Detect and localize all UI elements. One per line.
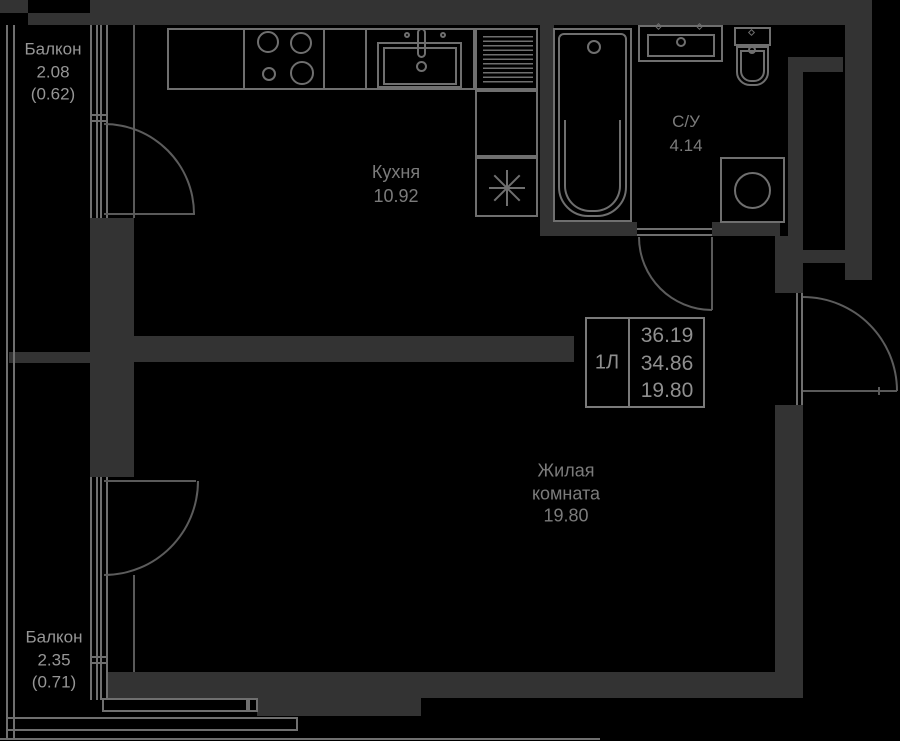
faucet-handle-icon xyxy=(440,32,446,38)
stove-burner-icon xyxy=(290,32,312,54)
stove-burner-icon xyxy=(290,61,314,85)
bathroom-label: С/У 4.14 xyxy=(669,110,702,158)
bathroom-door-frame-2 xyxy=(637,234,712,236)
bathroom-name: С/У xyxy=(669,110,702,134)
site-boundary-bottom xyxy=(0,738,600,740)
unit-areas: 36.19 34.86 19.80 xyxy=(641,322,694,405)
counter-divider-1 xyxy=(243,28,245,90)
vanity-drain-icon xyxy=(676,37,686,47)
wall-right-outer xyxy=(845,0,872,280)
balcony-bottom-label: Балкон 2.35 (0.71) xyxy=(25,626,82,694)
unit-type-label: 1Л xyxy=(595,352,619,375)
window-bottom-mullion-1 xyxy=(90,656,108,658)
counter-divider-2 xyxy=(323,28,325,90)
unit-info-box-divider xyxy=(628,317,630,408)
kitchen-area: 10.92 xyxy=(372,184,420,208)
floor-plan: 1Л 36.19 34.86 19.80 Балкон 2.08 (0.62) … xyxy=(0,0,900,741)
faucet-handle-icon xyxy=(404,32,410,38)
balcony-top-area: 2.08 xyxy=(24,61,81,84)
wall-shaft-bottom xyxy=(803,250,872,263)
wall-bottom xyxy=(107,672,803,698)
wall-shaft-top xyxy=(788,57,843,72)
balcony-top-label: Балкон 2.08 (0.62) xyxy=(24,38,81,106)
refrigerator-hatch xyxy=(483,36,533,84)
glazing-bottom-end xyxy=(296,717,298,731)
living-room-area: 19.80 xyxy=(532,504,600,527)
bottom-wall-window xyxy=(102,698,248,712)
counter-divider-3 xyxy=(365,28,367,90)
balcony-bottom-reduced-area: (0.71) xyxy=(25,671,82,694)
window-bottom-line-2 xyxy=(96,477,98,700)
living-room-name-1: Жилая xyxy=(532,459,600,482)
bottom-wall-window-end xyxy=(248,698,258,712)
wall-room-divider xyxy=(134,336,574,362)
balcony-bottom-name: Балкон xyxy=(25,626,82,649)
toilet-bowl-inner xyxy=(740,50,765,82)
bathroom-area: 4.14 xyxy=(669,134,702,158)
wall-left-mid xyxy=(90,218,134,477)
balcony-top-name: Балкон xyxy=(24,38,81,61)
balcony-top-reduced-area: (0.62) xyxy=(24,83,81,106)
window-bottom-mullion-2 xyxy=(90,662,108,664)
toilet-hinge-icon xyxy=(748,46,756,54)
wall-bathroom-bottom-right xyxy=(712,222,780,236)
balcony-bottom-area: 2.35 xyxy=(25,649,82,672)
wall-top xyxy=(90,0,872,25)
wall-balcony-top xyxy=(28,13,90,25)
bathtub-basin-curve xyxy=(564,120,621,212)
wall-bottom-step xyxy=(257,698,421,716)
unit-total-area: 36.19 xyxy=(641,322,694,350)
cabinet-box xyxy=(475,90,538,157)
window-bottom-line-3 xyxy=(100,477,102,700)
living-room-label: Жилая комната 19.80 xyxy=(532,459,600,527)
glazing-left-outer xyxy=(6,25,8,739)
bathroom-door-swing-arc xyxy=(638,237,712,311)
kitchen-label: Кухня 10.92 xyxy=(372,160,420,208)
bathroom-door-frame-1 xyxy=(637,228,712,230)
glazing-bottom-outer xyxy=(6,717,298,719)
living-room-name-2: комната xyxy=(532,482,600,505)
washing-machine-drum xyxy=(734,172,771,209)
entrance-door-jamb-1 xyxy=(796,293,798,405)
wall-bathroom-left xyxy=(540,25,554,236)
balcony-top-door-swing-arc xyxy=(104,123,195,214)
window-bottom-line-1 xyxy=(90,477,92,700)
stove-burner-icon xyxy=(257,31,279,53)
wall-balcony-divider xyxy=(9,352,90,363)
wall-shaft-left xyxy=(788,72,803,250)
stove-burner-icon xyxy=(262,67,276,81)
wall-bathroom-bottom-left xyxy=(540,222,637,236)
window-top-mullion-2 xyxy=(90,120,108,122)
window-bottom-reveal xyxy=(133,575,135,672)
glazing-left-inner xyxy=(13,25,15,739)
unit-area-without-balcony: 34.86 xyxy=(641,349,694,377)
glazing-bottom-inner xyxy=(6,729,298,731)
balcony-bottom-door-swing-arc xyxy=(104,481,199,576)
faucet-drain-icon xyxy=(416,61,427,72)
window-top-mullion-1 xyxy=(90,114,108,116)
faucet-spout-icon xyxy=(417,28,426,58)
wall-right-lower xyxy=(775,405,803,698)
entrance-door-swing-arc xyxy=(803,296,898,391)
bathtub-drain-icon xyxy=(587,40,601,54)
unit-living-area: 19.80 xyxy=(641,377,694,405)
wall-corner-top-left xyxy=(0,0,28,13)
kitchen-name: Кухня xyxy=(372,160,420,184)
